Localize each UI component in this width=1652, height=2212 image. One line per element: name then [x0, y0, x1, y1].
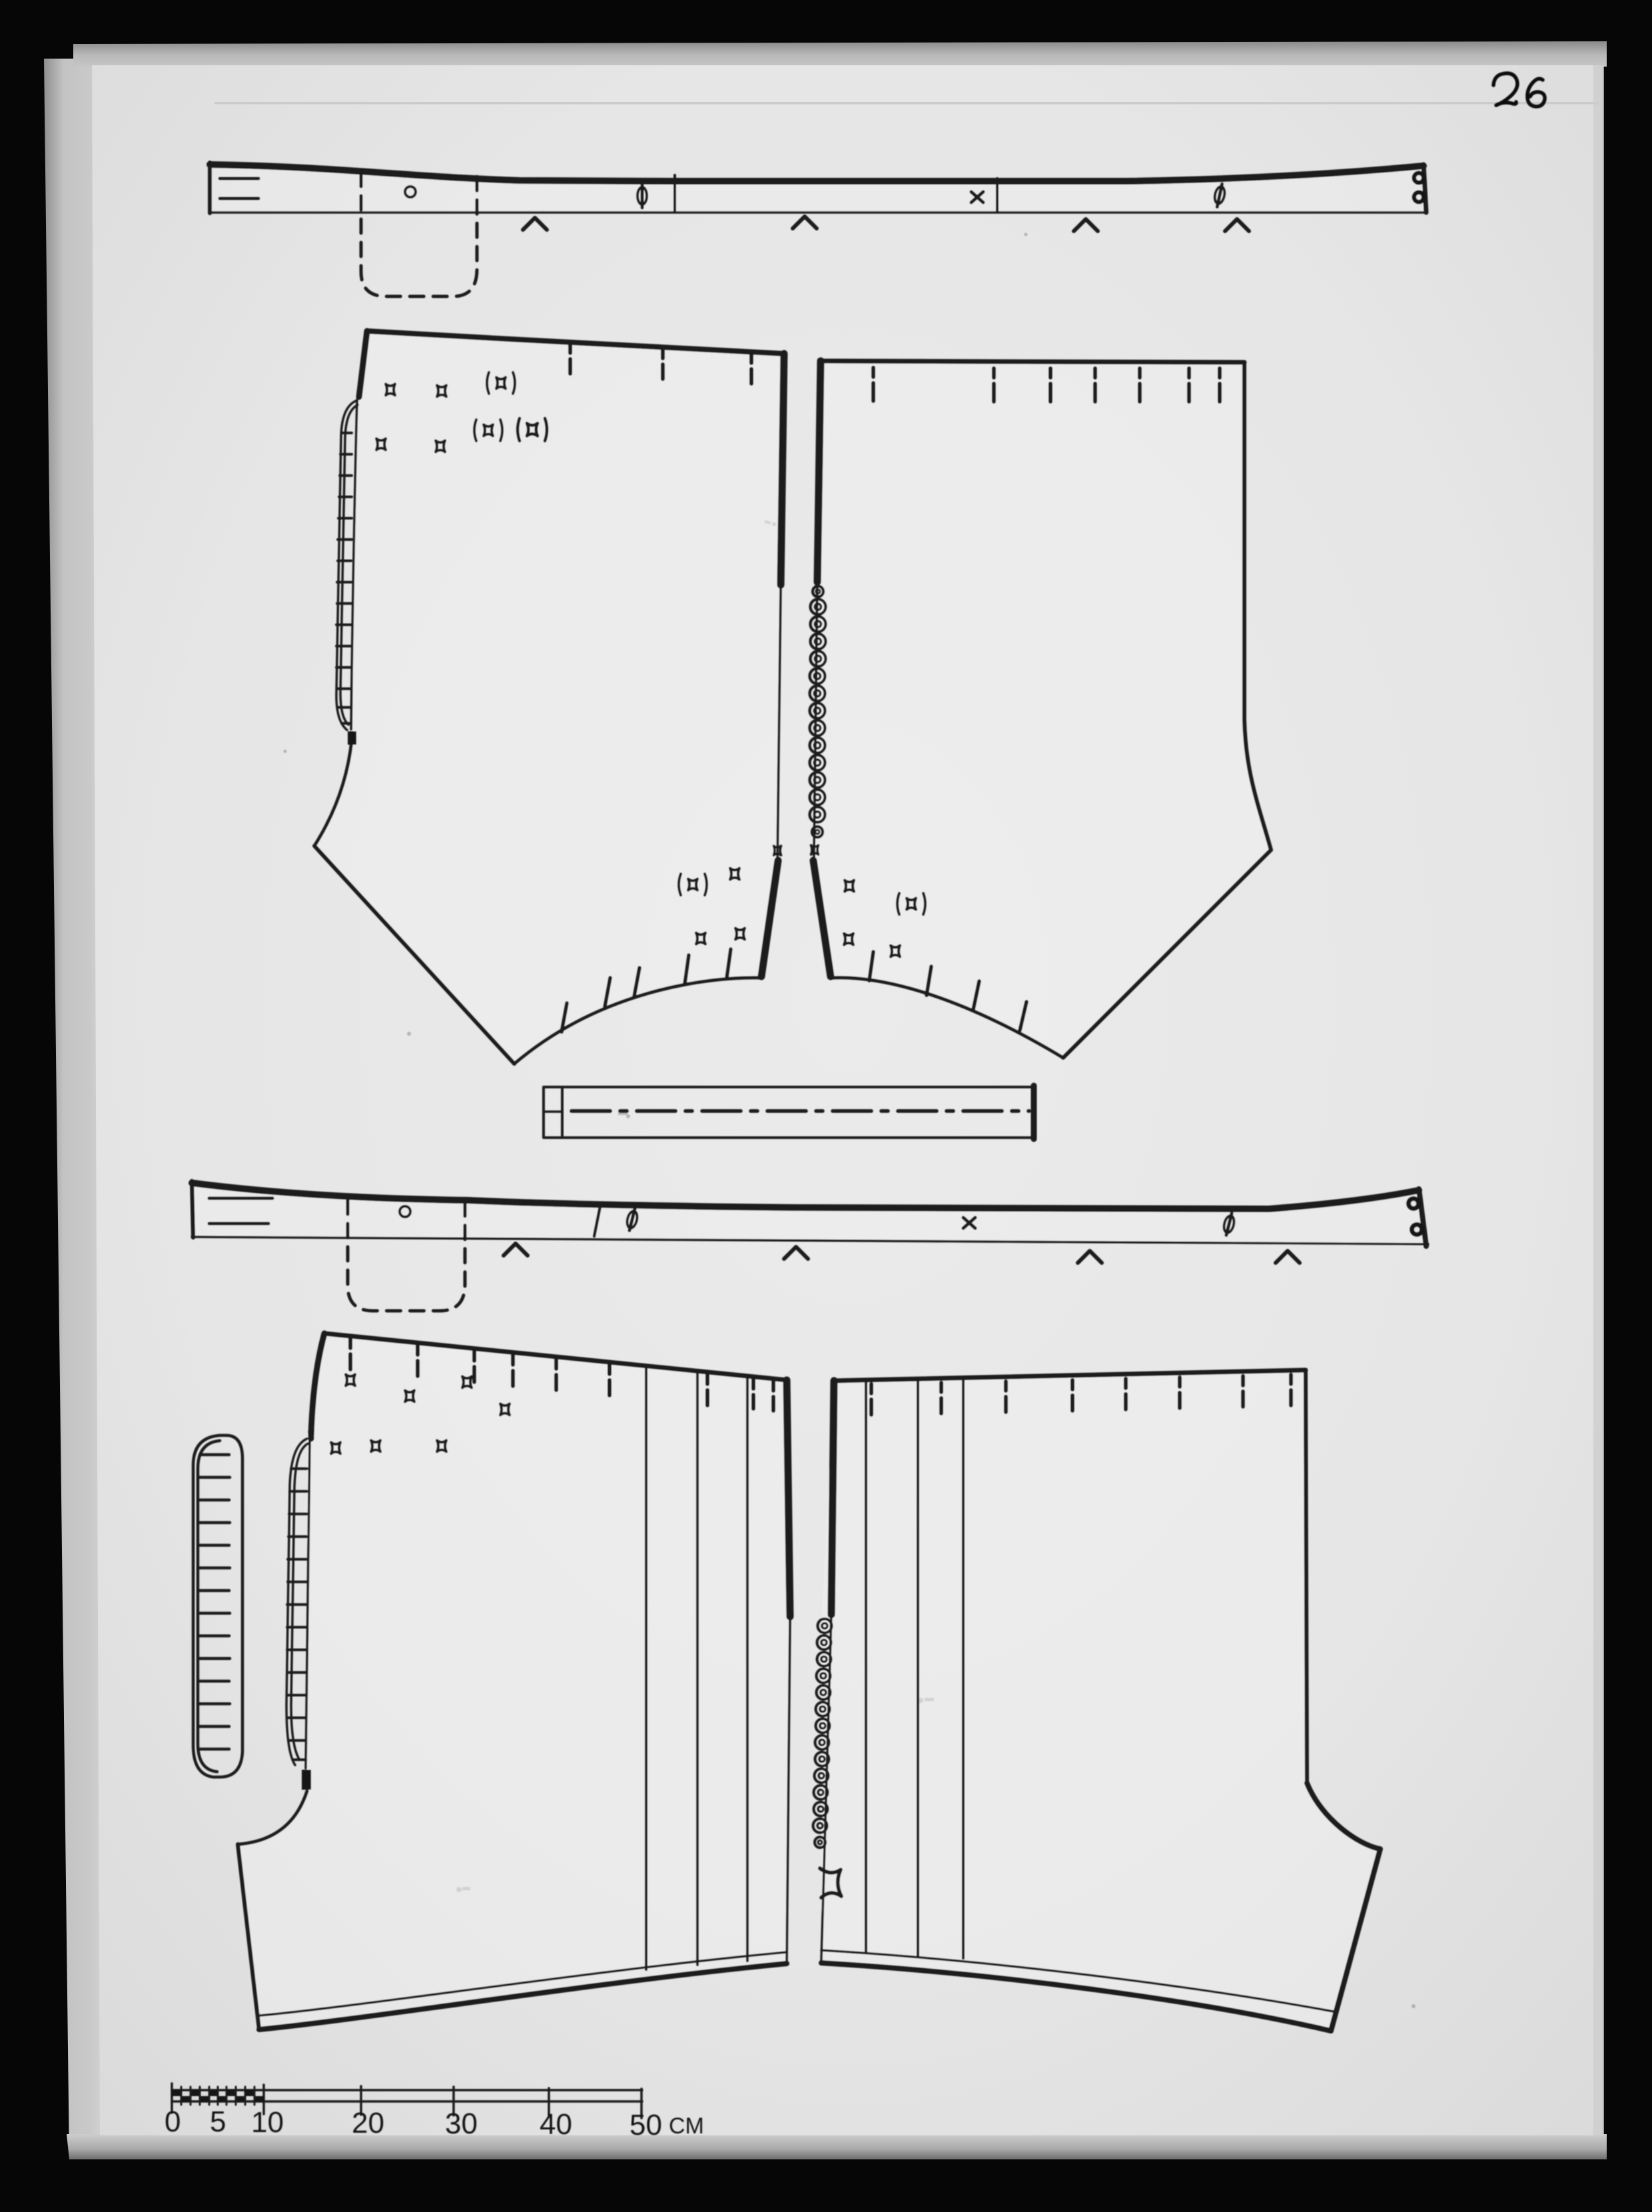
svg-text:0: 0: [165, 2105, 181, 2138]
svg-text:50: 50: [629, 2109, 662, 2141]
svg-text:10: 10: [251, 2106, 284, 2139]
svg-text:20: 20: [352, 2107, 384, 2139]
svg-text:5: 5: [210, 2105, 226, 2138]
svg-text:CM: CM: [669, 2113, 704, 2139]
svg-text:30: 30: [445, 2107, 478, 2140]
svg-text:40: 40: [540, 2108, 572, 2141]
